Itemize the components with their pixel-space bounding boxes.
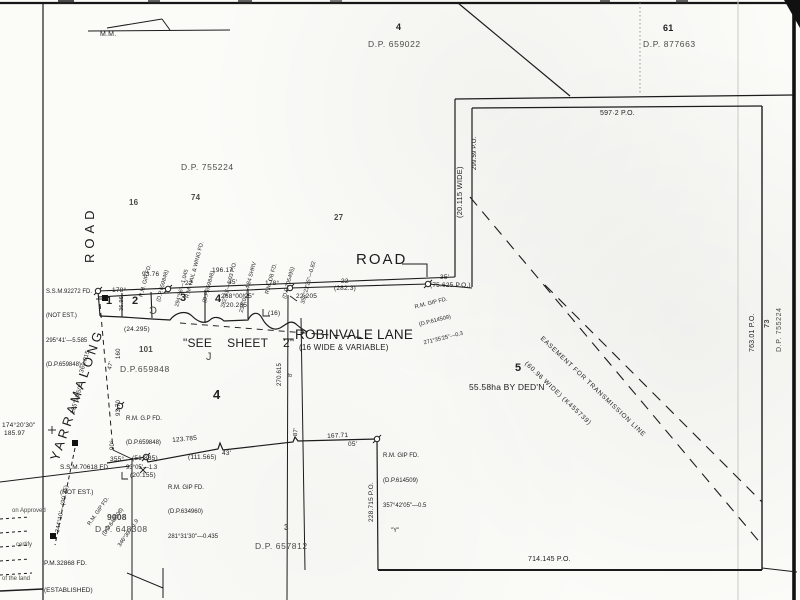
rm-line: 357°42'05"—0.5 (383, 502, 426, 510)
dim-270-615: 270.615 (277, 363, 284, 386)
pm-line: P.M.32868 FD. (44, 559, 93, 568)
rm-line: R.M. G.P FD. (126, 415, 162, 423)
dim-93-70: 93.70 (116, 400, 123, 416)
rm-line: (D.P.614509) (383, 477, 426, 485)
dim-355: 355° (110, 457, 124, 464)
dim-111-565: (111.565) (188, 455, 217, 462)
dim-299-59: 299.59 P.O. (472, 137, 478, 170)
rm-gip-634960-block: R.M. GIP FD. (D.P.634960) 281°31'30"—0.4… (168, 468, 218, 557)
dim-16-lane: (16) (268, 311, 280, 318)
adjoining-lot73-number: 73 (763, 319, 771, 328)
dim-35-b: 35' (440, 275, 449, 282)
rm-line: R.M. GIP FD. (138, 259, 154, 298)
adjoining-lot74-number: 74 (191, 194, 200, 202)
rm-line: "Y" (383, 527, 426, 535)
adjoining-lot61-number: 61 (663, 24, 673, 33)
rm-line: (D.P.659848) (126, 439, 162, 447)
adjoining-lot4-number: 4 (396, 23, 401, 32)
dim-90: 90° (110, 440, 117, 450)
rm-line: 281°31'30"—0.435 (168, 533, 218, 541)
pm-32868-block: P.M.32868 FD. (ESTABLISHED) (44, 541, 93, 600)
pm-line: (ESTABLISHED) (44, 586, 93, 595)
rm-line: 271°35'25"—0.3 (423, 331, 464, 347)
rm-line: 358°22'25"—0.82 (300, 261, 317, 305)
rm-line: (D.P.659848) (156, 264, 172, 303)
dim-05: 05' (348, 442, 357, 449)
dim-185-97: 185.97 (4, 431, 25, 438)
dim-36-96: 36.96 (119, 296, 125, 311)
dim-282-3: (282.3) (334, 286, 356, 293)
survey-plan-sheet: M.M. 4 D.P. 659022 61 D.P. 877663 597·2 … (0, 0, 800, 600)
rm-line: (D.P.614509) (419, 313, 460, 329)
adjoining-lot61-dp: D.P. 877663 (643, 40, 696, 49)
rm-line: R.M. DB FD. (264, 251, 281, 295)
brace-j-glyph: J (206, 352, 212, 364)
see-sheet-note: "SEE SHEET 2" (183, 337, 294, 350)
dim-8: 8' (288, 372, 294, 377)
adjoining-boundaries (458, 3, 640, 96)
dim-167-71: 167.71 (327, 433, 348, 441)
rm-line: (D.P.634960) (168, 508, 218, 516)
dp-657812: D.P. 657812 (255, 542, 308, 551)
rm-line: (D.P.705495) (282, 256, 299, 300)
dim-160: 160 (116, 348, 123, 359)
adjoining-lot16-number: 16 (129, 199, 138, 207)
dp-755224-right: D.P. 755224 (776, 307, 783, 352)
robinvale-lane-name: ROBINVALE LANE (295, 328, 413, 342)
road-label: ROAD (356, 252, 407, 268)
dim-178-a: 178° (112, 288, 126, 295)
form-line: certify (2, 540, 46, 551)
form-line: of the land (2, 574, 46, 585)
ssm-line: (NOT EST.) (46, 312, 92, 320)
adjoining-lot4-dp: D.P. 659022 (368, 40, 421, 49)
adjoining-lot3-number: 3 (284, 524, 289, 532)
road-corridor-width: (20.115 WIDE) (456, 166, 464, 218)
dim-597-2: 597·2 P.O. (600, 110, 635, 117)
lot4-big-number: 4 (213, 388, 220, 402)
ssm-line: S.S.M.92272 FD. (46, 288, 92, 296)
lot1-number: 1 (106, 296, 112, 308)
form-panel-text: on Approved certify of the land (2, 483, 46, 600)
robinvale-lane-width: (16 WIDE & VARIABLE) (299, 344, 389, 352)
lot101-number: 101 (139, 346, 153, 354)
dp-755224-top: D.P. 755224 (181, 163, 234, 172)
form-line: on Approved (2, 506, 46, 517)
rm-line: 93°05'—1.3 (126, 464, 162, 472)
brace-c-glyph: C (149, 306, 157, 318)
dim-20-155: (20.155) (130, 473, 156, 480)
dim-714-145: 714.145 P.O. (528, 556, 571, 563)
dim-87: 87' (293, 428, 300, 437)
dim-174-20-30: 174°20'30" (2, 423, 35, 430)
lot2-number: 2 (132, 296, 138, 308)
dim-763-01: 763.01 P.O. (749, 313, 756, 352)
ssm-line: S.S.M.70618 FD. (60, 464, 110, 472)
dim-24-295: (24.295) (124, 327, 150, 334)
dp-659848-mid: D.P.659848 (120, 365, 170, 374)
rm-gip-614509-y-block: R.M. GIP FD. (D.P.614509) 357°42'05"—0.5… (383, 435, 426, 552)
lot9008-number: 9008 (107, 513, 127, 522)
rm-line: R.M. GIP FD. (414, 294, 455, 310)
dp-648308: D.P. 648308 (95, 525, 148, 534)
yarramalong-road-suffix: ROAD (83, 205, 97, 263)
mm-top-label: M.M. (100, 31, 116, 38)
dim-228-715: 228.715 P.O. (369, 482, 376, 522)
dim-51-835: (51.835) (132, 456, 158, 463)
rm-line: R.M. GIP FD. (168, 484, 218, 492)
rm-line: R.M. GIP FD. (383, 452, 426, 460)
rm-line: R.M. NAIL & WING FD. (184, 241, 205, 299)
rm-line: 282°41'—1.03 P.O. (220, 251, 241, 309)
adjoining-lot27-number: 27 (334, 214, 343, 222)
dim-43: 43' (222, 451, 231, 458)
rm-line: (D.P.659848) (202, 246, 223, 304)
